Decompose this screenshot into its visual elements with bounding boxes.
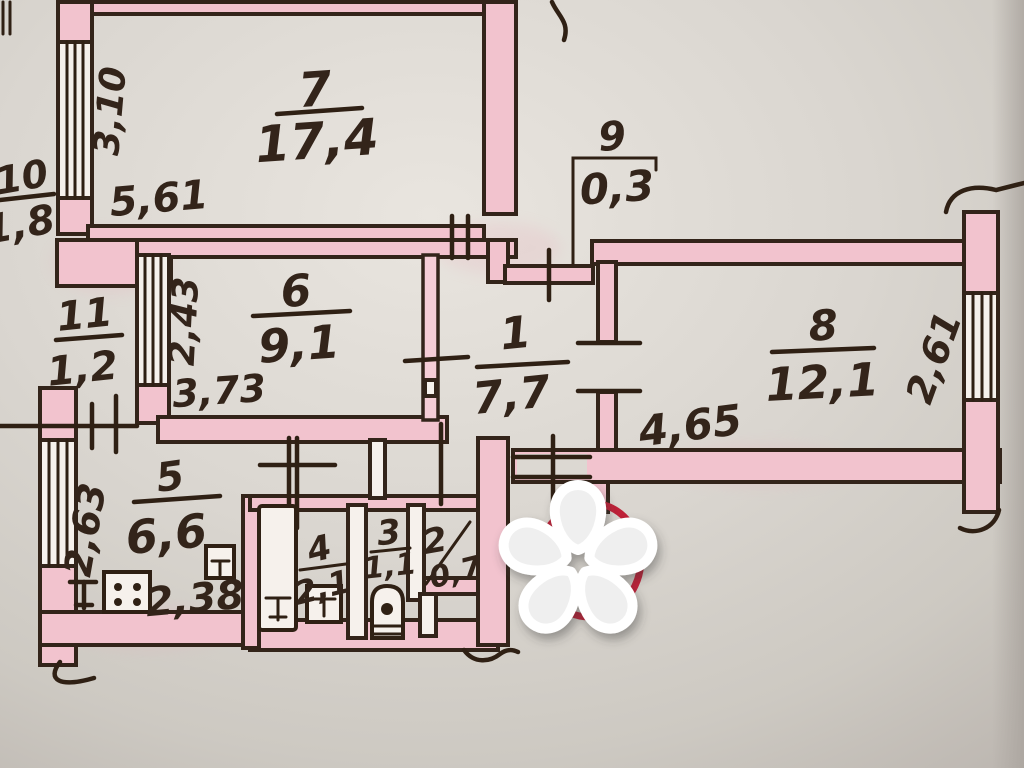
room-area: 1,2	[45, 342, 120, 395]
room-area: 17,4	[253, 108, 380, 174]
room-area: 12,1	[764, 352, 880, 412]
wall-left-upper-a	[58, 2, 92, 42]
room-area: 6,6	[123, 503, 210, 565]
wall-right-ext-upper	[964, 212, 998, 293]
floor-plan-svg: 7 17,4 6 9,1 1 7,7 8 12,1 9 0,3 10 1,8	[0, 0, 1024, 768]
window-right	[964, 293, 998, 400]
wall-room6-bottom	[158, 417, 447, 442]
wall-block-left	[243, 496, 259, 648]
wall-room7-right	[484, 2, 516, 214]
room-number: 1	[498, 307, 534, 361]
room-number: 8	[807, 300, 839, 350]
wall-top	[58, 2, 516, 14]
toilet-icon	[372, 586, 403, 638]
wall-room7-bottom	[88, 226, 484, 240]
wall-left-lower-a	[40, 388, 76, 440]
dim-room7-width: 5,61	[108, 172, 210, 226]
window-left-upper	[58, 42, 92, 198]
duct-above-block	[370, 440, 385, 498]
room-area: 7,7	[470, 366, 553, 425]
dim-room6-width: 3,73	[171, 366, 268, 416]
room-area: 1,1	[362, 546, 419, 586]
room-area: 9,1	[256, 314, 341, 374]
dim-room6-height: 2,43	[162, 276, 208, 367]
wall-room8-left-lower	[598, 392, 616, 452]
floor-plan-photo: 7 17,4 6 9,1 1 7,7 8 12,1 9 0,3 10 1,8	[0, 0, 1024, 768]
dim-room7-height: 3,10	[86, 65, 135, 157]
room-number: 9	[597, 113, 628, 161]
room-number: 11	[55, 289, 115, 341]
duct-below-2	[420, 594, 436, 636]
room-area: 0,3	[578, 160, 656, 214]
wall-room8-left-upper	[598, 262, 616, 342]
room-number: 6	[279, 265, 313, 318]
dim-room5-width: 2,38	[144, 572, 246, 626]
wall-right-ext-lower	[964, 400, 998, 512]
bathtub-icon	[259, 506, 296, 630]
door-notch-room6	[425, 380, 436, 396]
wall-room6-top	[137, 240, 516, 257]
stove-icon	[104, 572, 150, 612]
wall-room8-top	[592, 241, 978, 264]
